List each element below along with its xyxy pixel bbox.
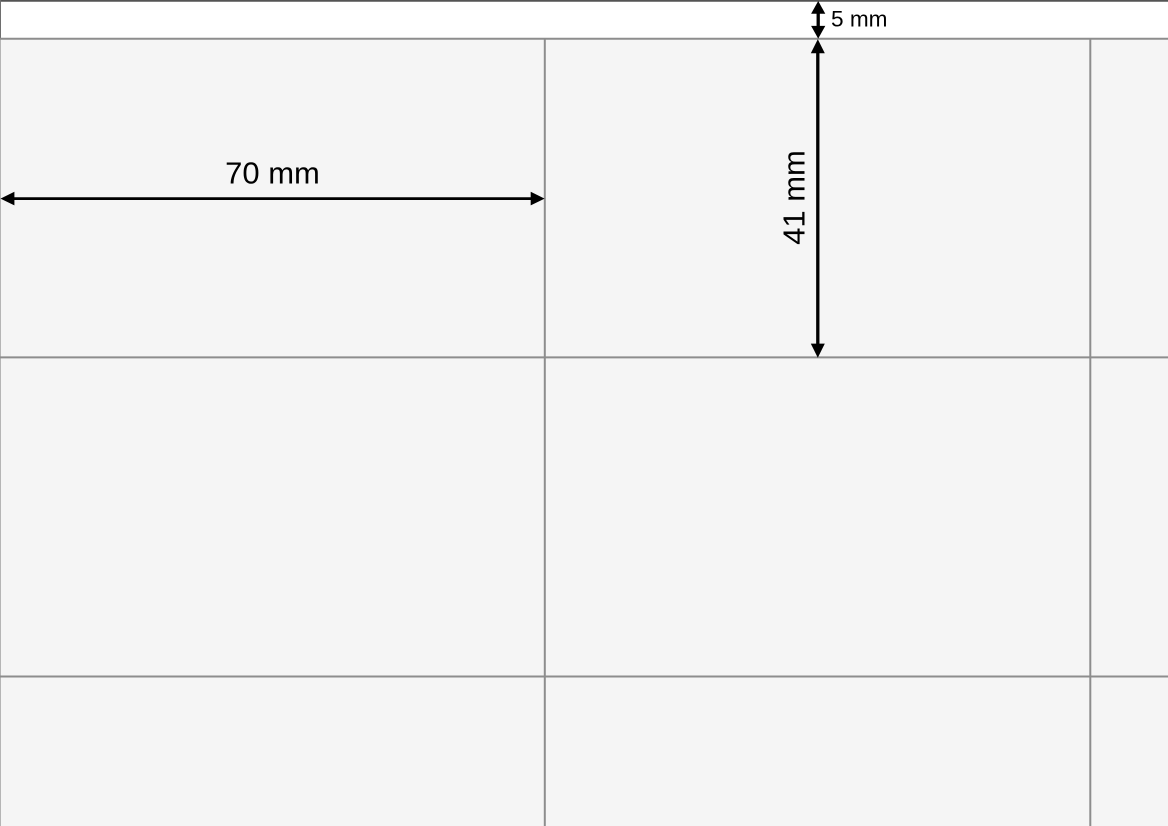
svg-text:41 mm: 41 mm [777, 150, 812, 245]
svg-text:70 mm: 70 mm [225, 155, 320, 190]
svg-text:5 mm: 5 mm [831, 7, 887, 32]
